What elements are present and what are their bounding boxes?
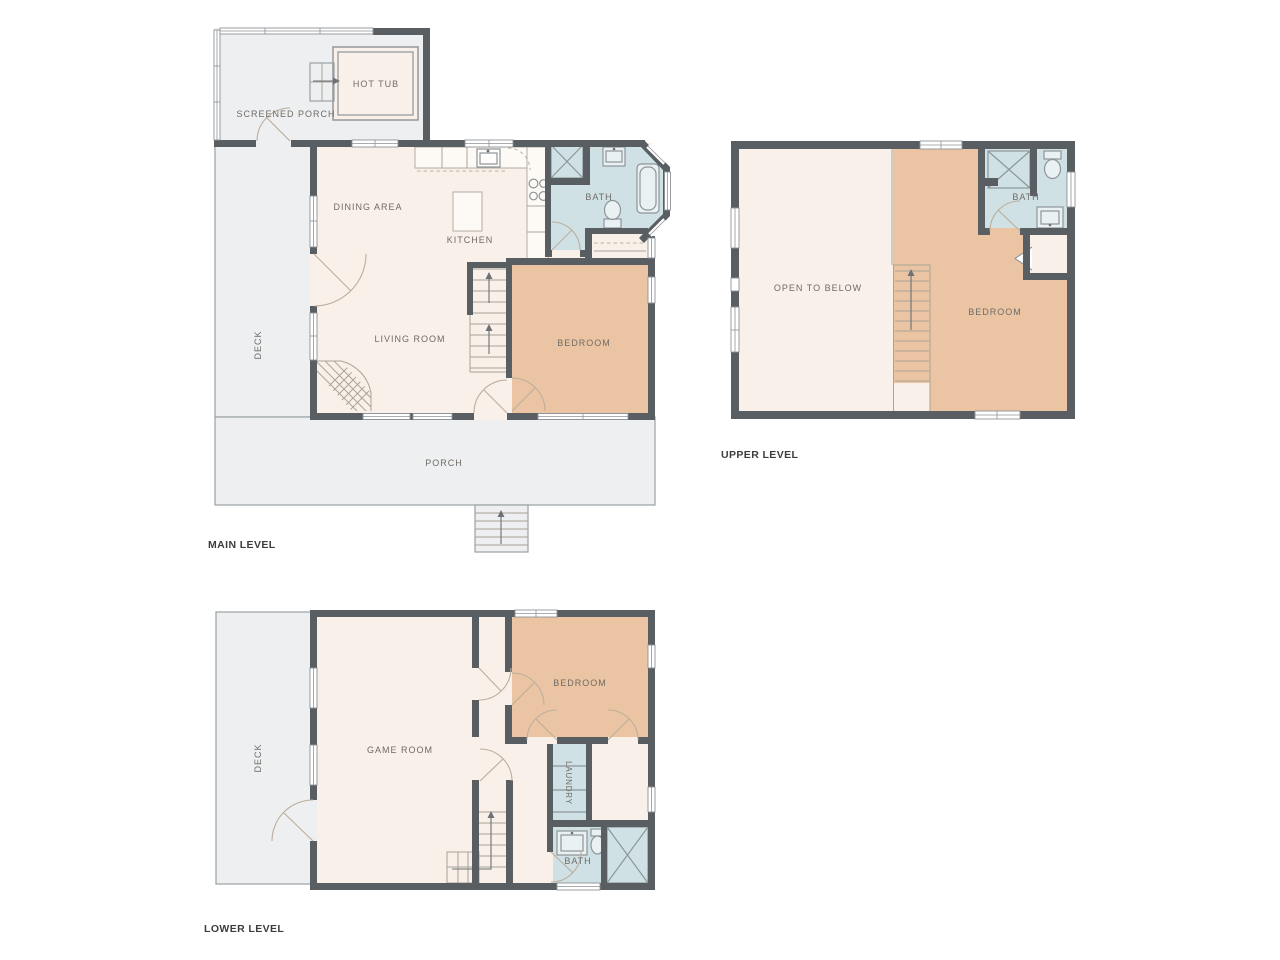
kitchen-label: KITCHEN	[447, 235, 494, 245]
laundry-label: LAUNDRY	[564, 761, 573, 805]
floor-plan-canvas: SCREENED PORCH HOT TUB DECK DINING AREA …	[0, 0, 1280, 960]
lower-bedroom-label: BEDROOM	[553, 678, 607, 688]
open-to-below-floor	[739, 149, 893, 411]
deck-floor	[215, 145, 313, 417]
living-room-label: LIVING ROOM	[374, 334, 445, 344]
upper-bedroom-label: BEDROOM	[968, 307, 1022, 317]
porch-label: PORCH	[425, 458, 463, 468]
porch-entry-steps	[475, 505, 528, 552]
screened-porch-label: SCREENED PORCH	[236, 109, 335, 119]
upper-stair-landing	[893, 383, 930, 411]
main-level-plan: SCREENED PORCH HOT TUB DECK DINING AREA …	[200, 20, 680, 560]
main-bedroom-label: BEDROOM	[557, 338, 611, 348]
main-bedroom-floor	[512, 258, 648, 413]
upper-sink-icon	[1037, 207, 1063, 228]
kitchen-island	[453, 192, 482, 231]
dining-area-label: DINING AREA	[333, 202, 402, 212]
upper-level-plan: OPEN TO BELOW BEDROOM BATH UPPER LEVEL	[710, 130, 1090, 470]
bathtub-icon	[637, 164, 659, 213]
main-level-title: MAIN LEVEL	[208, 539, 276, 551]
lower-sink-icon	[557, 831, 587, 855]
hot-tub-label: HOT TUB	[353, 79, 399, 89]
upper-toilet-icon	[1044, 151, 1061, 179]
deck-door-gap	[310, 800, 317, 841]
lower-level-title: LOWER LEVEL	[204, 923, 284, 935]
porch-door-gap	[474, 413, 507, 420]
lower-deck-floor	[216, 612, 313, 884]
lower-bath-label: BATH	[564, 856, 591, 866]
dining-door-gap	[310, 254, 317, 306]
main-deck-label: DECK	[253, 330, 263, 359]
lower-deck-label: DECK	[253, 743, 263, 772]
upper-closet-floor	[1030, 234, 1067, 273]
toilet-icon	[604, 201, 621, 229]
screened-porch-door-gap	[256, 140, 291, 147]
lower-bedroom-floor	[512, 617, 648, 737]
upper-bath-label: BATH	[1012, 192, 1039, 202]
lower-level-plan: DECK GAME ROOM BEDROOM LAUNDRY BATH LOWE…	[195, 595, 665, 945]
main-bath-label: BATH	[585, 192, 612, 202]
open-to-below-label: OPEN TO BELOW	[774, 283, 862, 293]
upper-level-title: UPPER LEVEL	[721, 449, 799, 461]
game-room-label: GAME ROOM	[367, 745, 433, 755]
kitchen-sink-icon	[477, 149, 500, 167]
bath-sink-icon	[603, 147, 625, 166]
